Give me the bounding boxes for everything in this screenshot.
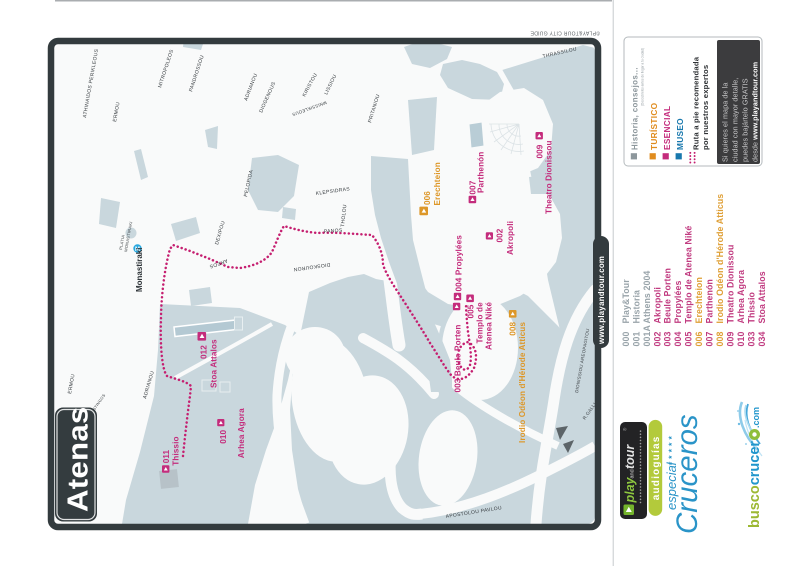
svg-text:Si quieres el mapa de la: Si quieres el mapa de la [721, 82, 730, 162]
svg-text:puedes bajártelo GRATIS: puedes bajártelo GRATIS [741, 78, 750, 162]
svg-text:TURÍSTICO: TURÍSTICO [649, 102, 659, 150]
svg-text:006Erechteion: 006Erechteion [694, 277, 704, 346]
svg-text:Arhea Agora: Arhea Agora [237, 408, 246, 458]
svg-text:Atenea Niké: Atenea Niké [485, 302, 494, 350]
svg-text:003Beule Porten: 003Beule Porten [663, 268, 673, 346]
svg-text:and: and [630, 469, 636, 478]
svg-text:©PLAY&TOUR CITY GUIDE: ©PLAY&TOUR CITY GUIDE [530, 30, 600, 37]
svg-text:Ruta a pie recomendada: Ruta a pie recomendada [691, 56, 700, 150]
svg-text:001Historia: 001Historia [631, 290, 641, 347]
svg-text:012: 012 [200, 345, 209, 359]
svg-text:011: 011 [162, 449, 171, 463]
svg-text:Theatro Dionissou: Theatro Dionissou [545, 140, 554, 214]
svg-text:005: 005 [466, 304, 475, 318]
svg-text:play: play [623, 476, 637, 503]
svg-text:.com: .com [751, 407, 761, 428]
svg-text:008: 008 [508, 321, 517, 335]
svg-text:002: 002 [496, 228, 505, 242]
svg-text:Monastiraki: Monastiraki [135, 248, 144, 292]
svg-text:010: 010 [219, 429, 228, 443]
svg-text:por nuestros expertos: por nuestros expertos [701, 65, 710, 150]
svg-text:desde www.playandtour.com: desde www.playandtour.com [751, 62, 760, 162]
svg-text:004 Propylées: 004 Propylées [454, 235, 463, 292]
svg-text:Historia, consejos...: Historia, consejos... [631, 67, 640, 150]
svg-text:Erechteion: Erechteion [433, 162, 442, 205]
svg-text:www.playandtour.com: www.playandtour.com [597, 256, 606, 345]
svg-text:Irodio Odéon d'Hérode Atticus: Irodio Odéon d'Hérode Atticus [518, 322, 527, 443]
svg-text:008Irodio Odéon d'Hérode Attic: 008Irodio Odéon d'Hérode Atticus [715, 194, 725, 347]
svg-text:001AAthens 2004: 001AAthens 2004 [642, 271, 652, 347]
svg-text:009Theatro Dionissou: 009Theatro Dionissou [725, 245, 735, 347]
svg-text:006: 006 [423, 191, 432, 205]
svg-text:004Propylées: 004Propylées [673, 281, 683, 347]
svg-text:010Arhea Agora: 010Arhea Agora [736, 270, 746, 347]
svg-text:003 Beule Porten: 003 Beule Porten [453, 324, 462, 392]
svg-text:Thissio: Thissio [171, 436, 180, 465]
svg-text:audioguías: audioguías [651, 436, 662, 501]
svg-text:005Templo de Atenea Niké: 005Templo de Atenea Niké [684, 226, 694, 347]
svg-text:ciudad con mayor detalle,: ciudad con mayor detalle, [731, 78, 740, 162]
svg-text:Cruceros: Cruceros [671, 414, 704, 534]
svg-text:002Akropoli: 002Akropoli [652, 287, 662, 346]
svg-text:Akropoli: Akropoli [506, 221, 515, 255]
svg-text:Parthenón: Parthenón [477, 152, 486, 193]
svg-text:ESENCIAL: ESENCIAL [662, 106, 672, 150]
svg-text:Templo de: Templo de [475, 302, 484, 344]
svg-text:Stoa Attalos: Stoa Attalos [210, 339, 219, 388]
svg-text:000Play&Tour: 000Play&Tour [621, 279, 631, 347]
svg-text:tour: tour [623, 444, 637, 469]
svg-text:034Stoa Attalos: 034Stoa Attalos [757, 271, 767, 346]
svg-text:009: 009 [536, 144, 545, 158]
svg-text:buscocrucer: buscocrucer [747, 441, 763, 528]
svg-text:(Descúbrelos antes de llegar a: (Descúbrelos antes de llegar a tu ciudad… [641, 48, 645, 106]
svg-text:007Parthenón: 007Parthenón [705, 279, 715, 346]
svg-text:033Thissio: 033Thissio [746, 291, 756, 346]
svg-text:Atenas: Atenas [63, 406, 95, 512]
svg-text:MUSEO: MUSEO [675, 118, 685, 150]
